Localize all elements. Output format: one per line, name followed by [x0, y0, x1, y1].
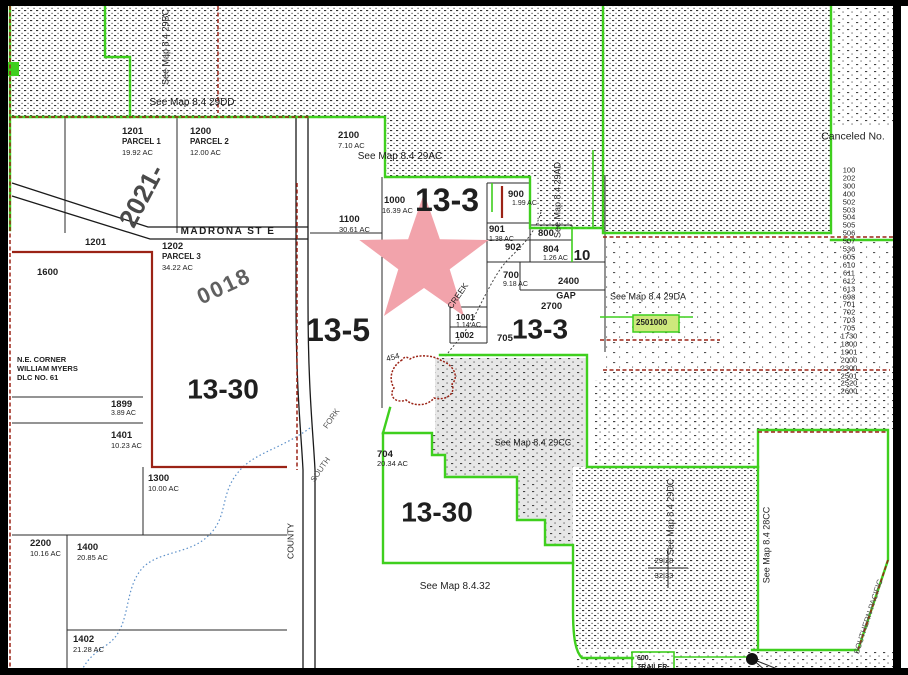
- star-marker: [359, 193, 488, 316]
- creek-line: [82, 428, 310, 670]
- road-lines: [12, 117, 315, 668]
- creek-line: [445, 212, 541, 357]
- highlighted-parcel-box: [633, 315, 679, 332]
- map-graphics: [0, 0, 908, 675]
- gray-shaded-area: [432, 358, 587, 545]
- parcel-map: 13-313-513-3013-313-30102021-0018See Map…: [0, 0, 908, 675]
- subdivision-stipple-areas: [12, 6, 893, 668]
